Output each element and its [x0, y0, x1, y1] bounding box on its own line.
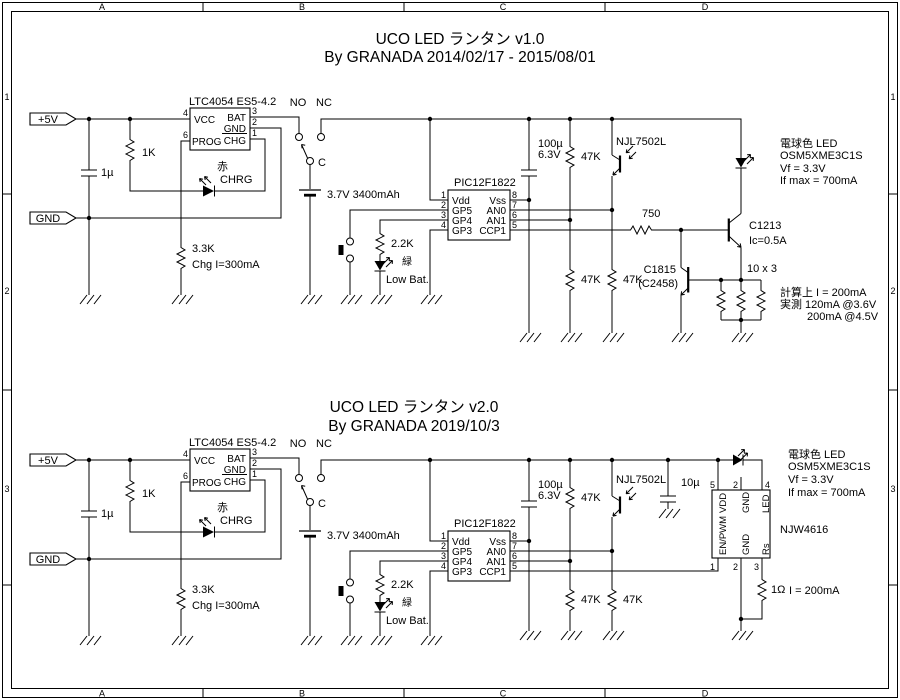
current-note: I = 200mA: [789, 585, 840, 597]
led-note: If max = 700mA: [780, 175, 858, 187]
measure-note: 実測 120mA @3.6V: [780, 297, 877, 311]
frame-col: D: [702, 689, 709, 699]
driver-pin: LED: [761, 494, 772, 513]
led-note: 電球色 LED: [788, 447, 846, 461]
phototransistor-label: NJL7502L: [616, 474, 666, 486]
driver-ic-title: NJW4616: [780, 524, 828, 536]
pin-num: 2: [733, 480, 738, 490]
pin-num: 5: [710, 480, 715, 490]
resistor-label: 47K: [581, 151, 601, 163]
schematic-canvas: +5V GND 1µ 1K 3.3K Chg I=300mA LTC4054 E…: [0, 0, 900, 700]
pin-num: 2: [733, 562, 738, 572]
driver-pin: VDD: [718, 493, 729, 513]
frame-row: 2: [890, 286, 895, 296]
led-note: Vf = 3.3V: [780, 163, 826, 175]
frame-row: 1: [890, 92, 895, 102]
sheet-frame: A B C D A B C D 1 2 3 1 2 3: [3, 2, 898, 699]
frame-col: B: [299, 2, 305, 12]
frame-row: 3: [890, 484, 895, 494]
resistor-label: 750: [642, 208, 660, 220]
pin-num: 3: [754, 562, 759, 572]
pin-num: 1: [710, 562, 715, 572]
v1-byline: By GRANADA 2014/02/17 - 2015/08/01: [324, 49, 595, 66]
led-note: 電球色 LED: [780, 136, 838, 150]
frame-row: 3: [4, 484, 9, 494]
sense-resistor-label: 1Ω: [771, 584, 785, 596]
measure-note: 200mA @4.5V: [807, 311, 879, 323]
led-note: Vf = 3.3V: [788, 474, 834, 486]
frame-col: C: [500, 689, 507, 699]
transistor-label: C1213: [749, 220, 781, 232]
driver-pin: EN/PWM: [718, 516, 729, 555]
v1-title: UCO LED ランタン v1.0: [376, 30, 545, 48]
transistor-alt-label: (C2458): [638, 278, 678, 290]
resistor-label: 47K: [581, 594, 601, 606]
transistor-label: C1815: [644, 264, 676, 276]
frame-col: C: [500, 2, 507, 12]
driver-pin: GND: [741, 534, 752, 555]
led-note: If max = 700mA: [788, 487, 866, 499]
phototransistor-label: NJL7502L: [616, 136, 666, 148]
frame-col: A: [99, 689, 105, 699]
v2-title: UCO LED ランタン v2.0: [330, 398, 499, 416]
cap-voltage: 6.3V: [538, 149, 561, 161]
frame-col: B: [299, 689, 305, 699]
cap-label: 10µ: [681, 477, 700, 489]
v2-byline: By GRANADA 2019/10/3: [328, 418, 499, 435]
measure-note: 計算上 I = 200mA: [780, 285, 867, 299]
sense-resistor-label: 10 x 3: [747, 263, 777, 275]
led-note: OSM5XME3C1S: [780, 150, 863, 162]
driver-pin: Rs: [761, 543, 772, 555]
driver-pin: GND: [741, 492, 752, 513]
cap-voltage: 6.3V: [538, 490, 561, 502]
resistor-label: 47K: [623, 594, 643, 606]
frame-col: A: [99, 2, 105, 12]
frame-col: D: [702, 2, 709, 12]
resistor-label: 47K: [581, 274, 601, 286]
frame-row: 1: [4, 92, 9, 102]
pin-num: 4: [765, 480, 770, 490]
frame-row: 2: [4, 286, 9, 296]
schematic-page: +5V GND 1µ 1K 3.3K Chg I=300mA LTC4054 E…: [0, 0, 900, 700]
resistor-label: 47K: [581, 492, 601, 504]
transistor-note: Ic=0.5A: [749, 235, 787, 247]
led-note: OSM5XME3C1S: [788, 461, 871, 473]
